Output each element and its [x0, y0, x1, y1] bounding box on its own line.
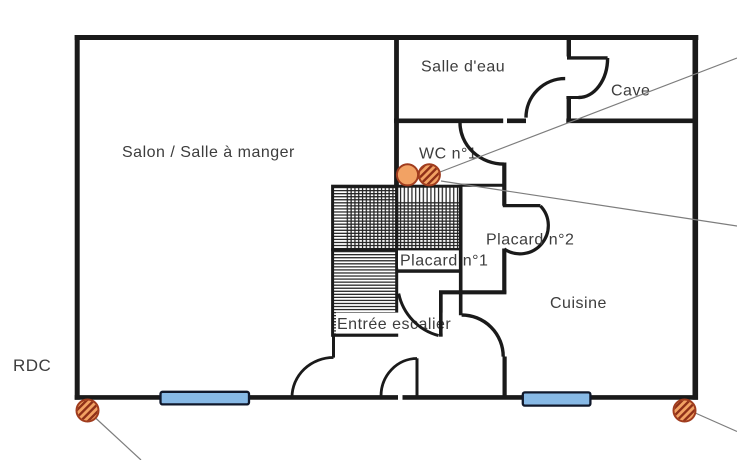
svg-text:Cave: Cave [611, 83, 650, 100]
svg-text:RDC: RDC [13, 356, 51, 375]
svg-text:Entrée escalier: Entrée escalier [337, 316, 451, 333]
svg-text:Cuisine: Cuisine [550, 295, 607, 312]
svg-text:Salon / Salle à manger: Salon / Salle à manger [122, 144, 295, 161]
svg-text:Placard n°1: Placard n°1 [400, 253, 488, 270]
svg-text:Placard n°2: Placard n°2 [486, 232, 574, 249]
svg-text:Salle d'eau: Salle d'eau [421, 59, 505, 76]
